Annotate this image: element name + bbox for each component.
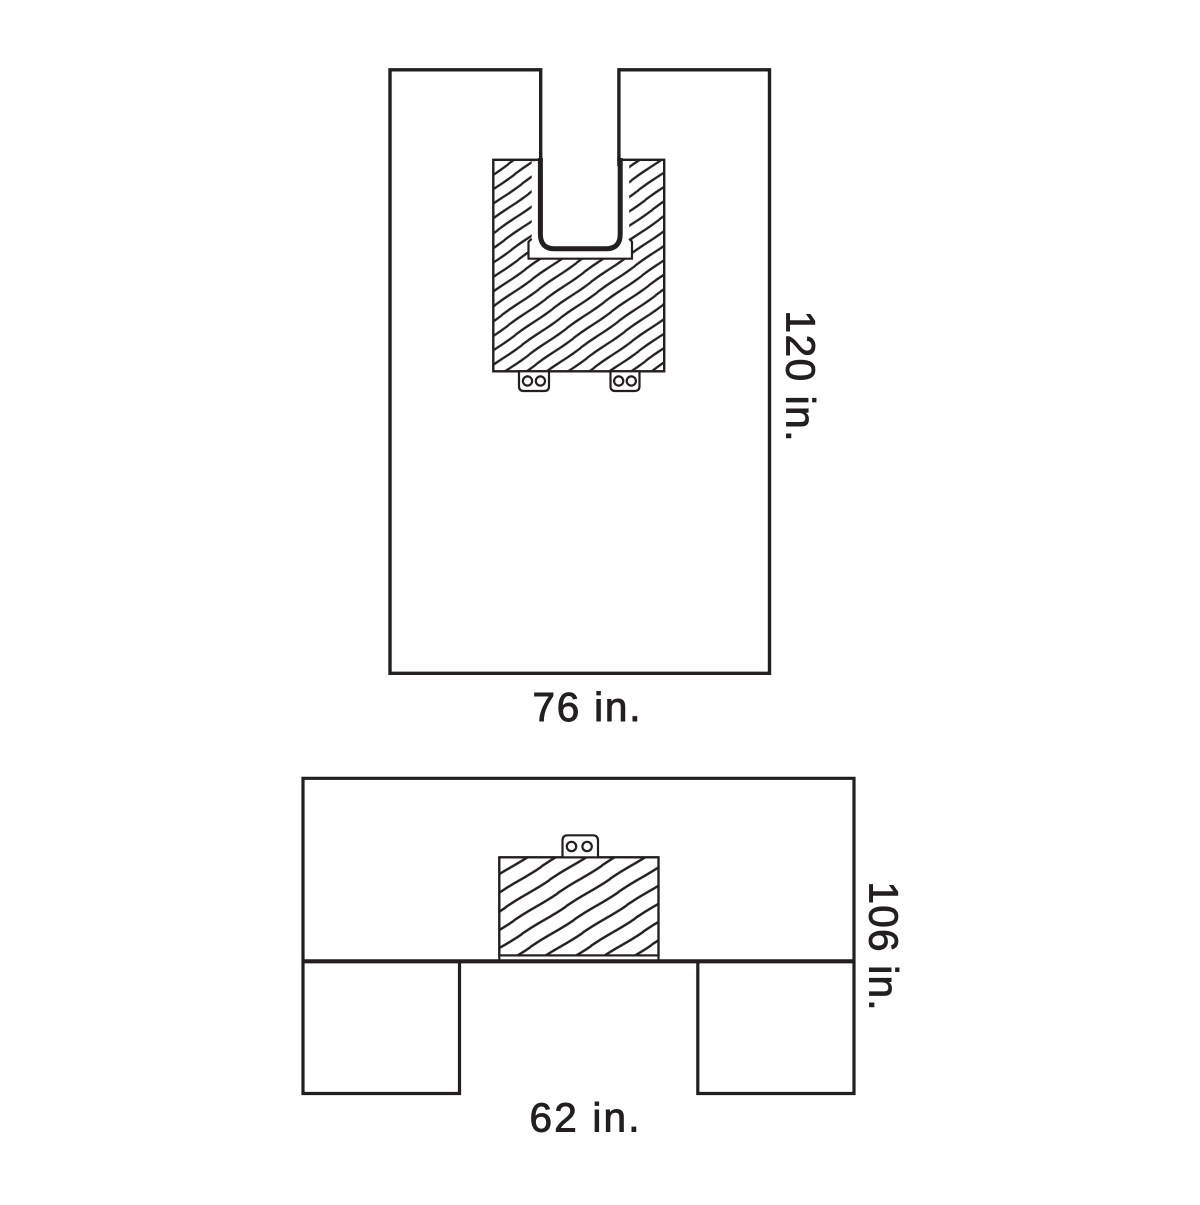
svg-text:106 in.: 106 in. [860, 882, 906, 1011]
svg-text:76 in.: 76 in. [533, 684, 641, 730]
svg-text:62 in.: 62 in. [530, 1095, 640, 1141]
svg-text:120 in.: 120 in. [778, 311, 824, 442]
